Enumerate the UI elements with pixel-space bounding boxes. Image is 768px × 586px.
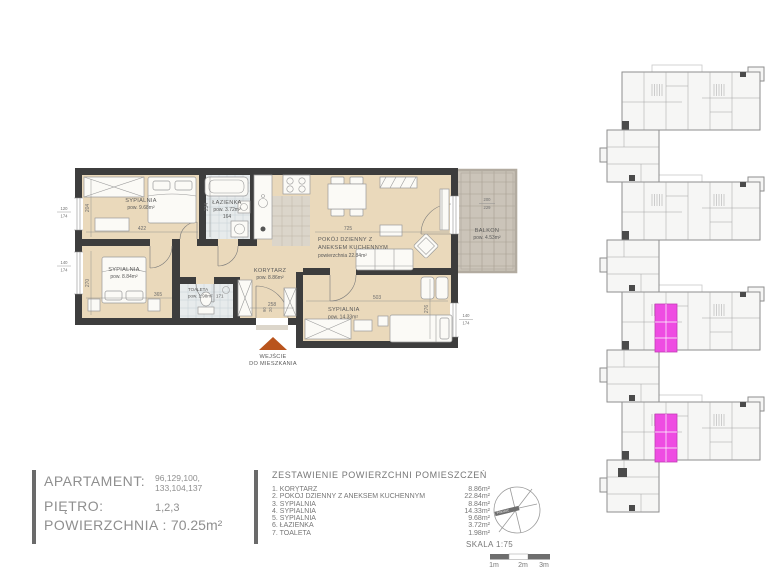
entrance-label-1: WEJŚCIE — [260, 352, 287, 360]
dim-bedroom2-h: 270 — [85, 279, 91, 288]
dim-bedroom1-h: 204 — [85, 204, 91, 213]
apartment-numbers: 96,129,100, 133,104,137 — [155, 473, 202, 493]
toilet-name: TOALETA — [188, 287, 208, 292]
bathroom-area: pow. 3.72m² — [213, 207, 241, 213]
row-value: 8.84m² — [468, 501, 490, 508]
row-name: 6. ŁAZIENKA — [272, 522, 314, 529]
compass: PÓŁNOC — [494, 487, 540, 533]
scale-mark-1m: 1m — [489, 562, 499, 569]
area-label: POWIERZCHNIA : — [44, 517, 167, 533]
bathroom-dim: 164 — [223, 214, 232, 220]
dim-window1-a: 120 — [61, 206, 69, 211]
floor-value: 1,2,3 — [155, 502, 179, 514]
corridor-area: pow. 8.86m² — [256, 275, 284, 281]
dim-bedroom2-w: 365 — [154, 292, 163, 298]
scale-label: SKALA 1:75 — [466, 540, 513, 549]
row-name: 3. SYPIALNIA — [272, 501, 316, 508]
dim-window2-b: 174 — [61, 268, 69, 273]
row-value: 14.33m² — [464, 508, 490, 515]
balcony — [458, 170, 516, 272]
table-row: 3. SYPIALNIA8.84m² — [272, 501, 490, 508]
toilet — [198, 307, 214, 314]
dim-window3-b: 174 — [463, 321, 471, 326]
sideboard — [380, 177, 417, 188]
dim-bathroom-h: 234 — [204, 203, 210, 212]
stove — [283, 175, 310, 194]
row-value: 3.72m² — [468, 522, 490, 529]
area-table-title: ZESTAWIENIE POWIERZCHNI POMIESZCZEŃ — [272, 470, 490, 480]
dim-living-w: 725 — [344, 226, 353, 232]
apartment-info-panel: APARTAMENT: 96,129,100, 133,104,137 PIĘT… — [32, 470, 258, 546]
bedroom3-area: pow. 14.33m² — [328, 315, 358, 321]
area-value: 70.25m² — [171, 517, 222, 533]
living-name-2: ANEKSEM KUCHENNYM — [318, 245, 388, 251]
dim-balcony-a: 200 — [484, 197, 492, 202]
entrance-threshold — [256, 325, 288, 330]
tv-bench — [440, 189, 449, 230]
dim-window3-a: 140 — [463, 313, 471, 318]
dim-door-a: 90 — [262, 307, 267, 312]
entrance-label-2: DO MIESZKANIA — [249, 361, 297, 367]
living-area: powierzchnia 22.84m² — [318, 253, 367, 259]
bedroom2-area: pow. 8.84m² — [110, 274, 138, 280]
dim-window2-a: 140 — [61, 260, 69, 265]
row-value: 8.86m² — [468, 486, 490, 493]
building-key-plan — [600, 65, 764, 512]
apartment-numbers-line1: 96,129,100, — [155, 473, 200, 483]
floor-label: PIĘTRO: — [44, 498, 155, 514]
living-name-1: POKÓJ DZIENNY Z — [318, 236, 373, 243]
dim-window1-b: 174 — [61, 214, 69, 219]
scale-mark-3m: 3m — [539, 562, 549, 569]
dim-balcony-b: 229 — [484, 205, 492, 210]
balcony-area: pow. 4.53m² — [473, 235, 501, 241]
toilet-area: pow. 1.98m² — [188, 294, 213, 299]
dining-table — [328, 184, 366, 209]
apartment-numbers-line2: 133,104,137 — [155, 483, 202, 493]
row-value: 22.84m² — [464, 493, 490, 500]
table-row: 4. SYPIALNIA14.33m² — [272, 508, 490, 515]
desk-bedroom1 — [95, 218, 129, 231]
dim-corridor-w: 258 — [268, 302, 277, 308]
toilet-dim: 171 — [216, 294, 224, 299]
row-value: 9.68m² — [468, 515, 490, 522]
row-name: 7. TOALETA — [272, 530, 311, 537]
row-name: 4. SYPIALNIA — [272, 508, 316, 515]
washing-machine — [231, 221, 248, 237]
apartment-plan: WEJŚCIE DO MIESZKANIA 422 725 365 503 25… — [57, 168, 516, 367]
row-name: 5. SYPIALNIA — [272, 515, 316, 522]
entrance-arrow-icon — [259, 337, 287, 350]
bedroom1-name: SYPIALNIA — [125, 198, 157, 204]
panel-bar-right — [254, 470, 258, 544]
bedroom2-name: SYPIALNIA — [108, 267, 140, 273]
kitchen-tiles — [272, 196, 310, 246]
corridor-name: KORYTARZ — [254, 268, 287, 274]
panel-bar-left — [32, 470, 36, 544]
bedroom3-name: SYPIALNIA — [328, 307, 360, 313]
floorplan-sheet: WEJŚCIE DO MIESZKANIA 422 725 365 503 25… — [0, 0, 768, 586]
table-row: 2. POKÓJ DZIENNY Z ANEKSEM KUCHENNYM22.8… — [272, 493, 490, 500]
room-area-table: ZESTAWIENIE POWIERZCHNI POMIESZCZEŃ 1. K… — [272, 470, 490, 537]
table-row: 5. SYPIALNIA9.68m² — [272, 515, 490, 522]
apartment-label: APARTAMENT: — [44, 473, 155, 489]
scale-bar: SKALA 1:75 1m 2m 3m — [466, 540, 550, 569]
dim-door-b: 20 — [268, 307, 273, 312]
dim-bedroom3-h: 276 — [424, 305, 430, 314]
dim-bedroom3-w: 503 — [373, 295, 382, 301]
dim-bedroom1-w: 422 — [138, 226, 147, 232]
table-row: 7. TOALETA1.98m² — [272, 530, 490, 537]
row-name: 2. POKÓJ DZIENNY Z ANEKSEM KUCHENNYM — [272, 493, 425, 500]
balcony-name: BALKON — [475, 228, 500, 234]
table-row: 6. ŁAZIENKA3.72m² — [272, 522, 490, 529]
row-value: 1.98m² — [468, 530, 490, 537]
scale-mark-2m: 2m — [518, 562, 528, 569]
bedroom1-area: pow. 9.68m² — [127, 205, 155, 211]
bathroom-name: ŁAZIENKA — [212, 200, 241, 206]
coffee-table — [380, 225, 402, 236]
